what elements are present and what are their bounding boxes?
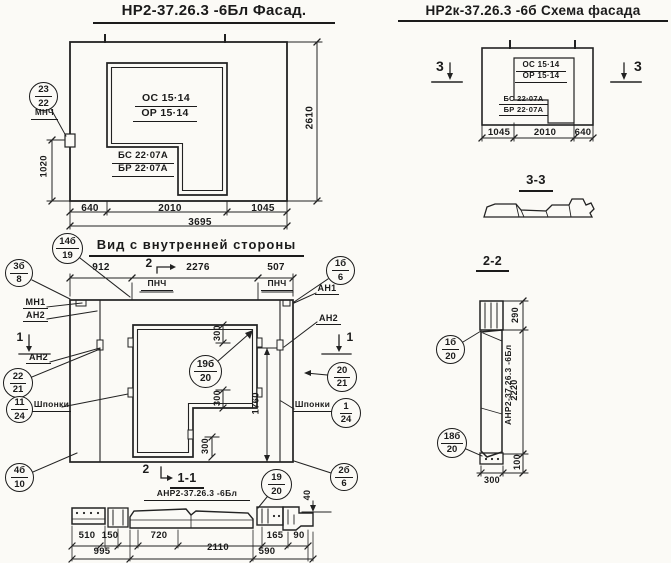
section-1-1-title: 1-1 [170,471,204,489]
dim-300-c: 300 [200,433,210,459]
dim-640: 640 [74,203,106,214]
facade-block-mark-1: БС 22·07А [112,151,174,164]
balloon-numerator: 2б [335,466,352,478]
balloon-numerator: 1 [340,402,351,414]
dim-510: 510 [74,531,100,542]
dim-2276: 2276 [180,262,216,273]
section-mark-2-bottom: 2 [140,463,152,476]
position-balloon-3b-8: 3б 8 [5,259,33,287]
balloon-numerator: 23 [35,85,52,97]
position-balloon-14b-19: 14б 19 [52,233,83,264]
balloon-denominator: 20 [447,444,458,455]
balloon-numerator: 4б [11,466,28,478]
blueprint-sheet: НР2-37.26.3 -6Бл Фасад. ОС 15·14 ОР 15·1… [0,0,671,563]
facade-window-mark-1: ОС 15·14 [135,93,197,107]
dim-2010-schema: 2010 [530,128,560,139]
dim-912: 912 [87,262,115,273]
dim-995: 995 [89,547,115,558]
dim-300-bottom: 300 [480,475,504,485]
section-mark-1-left: 1 [14,331,26,344]
facade-block-mark-2: БР 22·07А [112,164,174,177]
label-mn1: МН1 [23,297,48,309]
balloon-numerator: 18б [441,432,463,444]
balloon-numerator: 3б [10,262,27,274]
section-3-3-title: 3-3 [519,173,553,192]
balloon-numerator: 11 [11,398,27,410]
balloon-denominator: 21 [337,378,348,389]
section-mark-1-right: 1 [344,331,356,344]
balloon-numerator: 22 [10,372,27,384]
dim-1045: 1045 [245,203,281,214]
balloon-numerator: 14б [56,237,78,249]
dim-2610: 2610 [304,101,315,135]
section-mark-3-left: 3 [432,59,448,75]
position-balloon-11-24: 11 24 [6,396,33,423]
position-balloon-4b-10: 4б 10 [5,463,34,492]
dim-2110: 2110 [202,543,234,554]
balloon-denominator: 24 [341,414,352,425]
dim-640-schema: 640 [571,128,595,139]
position-balloon-2b-6: 2б 6 [330,463,358,491]
schema-block-mark-2: БР 22·07А [499,106,548,116]
balloon-denominator: 21 [13,384,24,395]
position-balloon-18b-20: 18б 20 [437,428,467,458]
dim-3695: 3695 [180,217,220,228]
position-balloon-19-20: 19 20 [261,469,292,500]
dim-300-a: 300 [212,320,222,346]
position-balloon-20-21: 20 21 [327,362,357,392]
inner-view-title: Вид с внутренней стороны [89,238,304,257]
section-2-2-title: 2-2 [476,254,509,272]
facade-title: НР2-37.26.3 -6Бл Фасад. [93,3,335,24]
facade-window-mark-2: ОР 15·14 [133,108,197,122]
dim-2010: 2010 [152,203,188,214]
balloon-denominator: 20 [271,485,282,496]
dim-100: 100 [512,451,522,473]
position-balloon-23-22: 23 22 [29,82,58,111]
dim-165: 165 [263,531,287,542]
label-an2-right: АН2 [316,313,341,325]
dim-720: 720 [146,531,172,542]
dim-300-b: 300 [212,385,222,411]
dim-150: 150 [99,531,121,542]
balloon-denominator: 24 [14,410,25,421]
dim-290: 290 [510,303,520,327]
position-balloon-1b-20: 1б 20 [436,335,465,364]
balloon-denominator: 6 [338,271,343,282]
balloon-numerator: 19 [268,473,285,485]
position-balloon-1b-6: 1б 6 [326,256,355,285]
dim-507: 507 [262,262,290,273]
label-shponki-left: Шпонки [32,400,71,412]
balloon-denominator: 20 [445,350,456,361]
label-pnch-right: ПНЧ [261,279,293,291]
dim-1760: 1760 [252,387,263,419]
schema-block-mark-1: БС 22·07А [499,95,548,105]
dim-40: 40 [302,487,312,503]
dim-1045-schema: 1045 [484,128,514,139]
label-shponki-right: Шпонки [293,400,332,412]
dim-90: 90 [289,531,309,542]
balloon-denominator: 8 [16,274,21,285]
balloon-numerator: 1б [332,259,349,271]
label-an2-left-top: АН2 [23,310,48,322]
position-balloon-22-21: 22 21 [3,368,33,398]
balloon-denominator: 10 [14,478,25,489]
balloon-denominator: 19 [62,249,73,260]
balloon-numerator: 1б [442,338,459,350]
schema-title: НР2к-37.26.3 -6б Схема фасада [398,3,668,22]
balloon-denominator: 22 [38,97,49,108]
section-mark-3-right: 3 [630,59,646,75]
dim-2220: 2220 [509,375,519,405]
position-balloon-1-24: 1 24 [331,398,361,428]
section-1-1-label: АНР2-37.26.3 -6Бл [144,489,250,501]
dim-1020: 1020 [40,151,51,181]
balloon-numerator: 19б [194,360,217,373]
position-balloon-19b-20: 19б 20 [189,355,222,388]
label-an1: АН1 [315,283,339,295]
balloon-denominator: 20 [200,372,211,384]
schema-window-mark-2: ОР 15·14 [515,72,567,83]
section-mark-2-top: 2 [143,257,155,270]
label-pnch-left: ПНЧ [141,279,173,291]
dim-590: 590 [254,547,280,558]
label-an2-left-mid: АН2 [26,352,51,364]
balloon-denominator: 6 [341,478,346,489]
balloon-numerator: 20 [334,366,351,378]
